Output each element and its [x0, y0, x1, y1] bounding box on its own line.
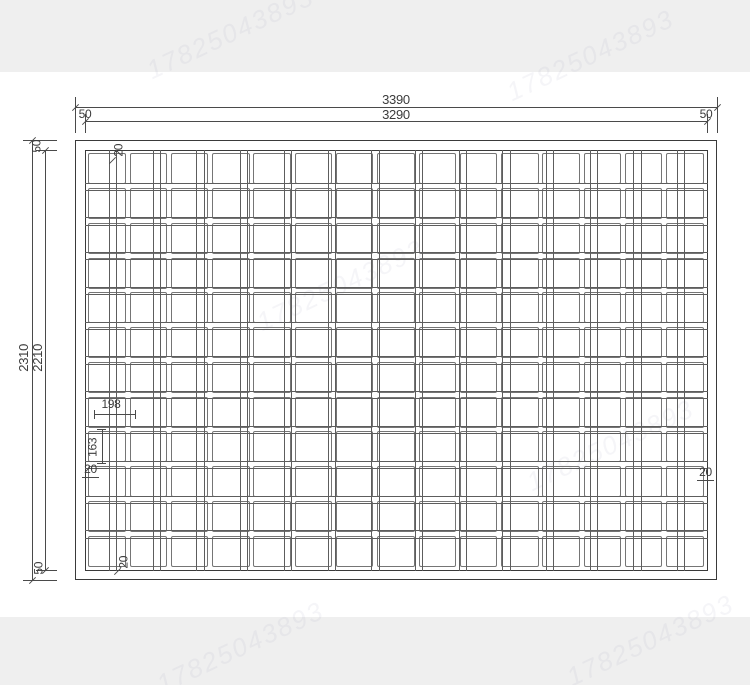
dimension-tick: [94, 410, 95, 419]
horizontal-wire-line: [85, 530, 708, 531]
technical-drawing-canvas: 17825043893 17825043893 17825043893 1782…: [0, 0, 750, 685]
mesh-cell: [336, 258, 374, 289]
mesh-cell: [542, 327, 580, 358]
mesh-cell: [501, 292, 539, 323]
vertical-wire-line: [196, 150, 197, 571]
dim-gap-left-label: 20: [82, 463, 99, 478]
mesh-cell: [130, 258, 168, 289]
vertical-wire-line: [510, 150, 511, 571]
horizontal-wire-line: [85, 468, 708, 469]
mesh-cell: [625, 327, 663, 358]
mesh-cell: [130, 536, 168, 567]
mesh-cell: [625, 292, 663, 323]
mesh-cell: [212, 188, 250, 219]
vertical-wire-line: [466, 150, 467, 571]
dim-cell-width-line: [94, 414, 135, 415]
mesh-cell: [88, 362, 126, 393]
extension-line: [23, 580, 57, 581]
dimension-tick: [135, 410, 136, 419]
mesh-cell: [419, 223, 457, 254]
mesh-cell: [625, 188, 663, 219]
horizontal-wire-line: [85, 538, 708, 539]
mesh-cell: [542, 258, 580, 289]
vertical-wire-line: [291, 150, 292, 571]
vertical-wire-line: [633, 150, 634, 571]
mesh-cell: [336, 188, 374, 219]
mesh-cell: [377, 292, 415, 323]
mesh-cell: [336, 327, 374, 358]
vertical-wire-line: [284, 150, 285, 571]
mesh-cell: [130, 431, 168, 462]
vertical-wire-line: [379, 150, 380, 571]
mesh-cell: [419, 466, 457, 497]
mesh-cell: [212, 466, 250, 497]
dim-inner-width-label: 3290: [366, 108, 426, 122]
mesh-cell: [419, 501, 457, 532]
vertical-wire-line: [641, 150, 642, 571]
vertical-wire-line: [240, 150, 241, 571]
horizontal-wire-line: [85, 398, 708, 399]
mesh-cell: [501, 501, 539, 532]
mesh-cell: [501, 397, 539, 428]
horizontal-wire-line: [85, 329, 708, 330]
mesh-cell: [419, 292, 457, 323]
mesh-cell: [88, 223, 126, 254]
vertical-wire-line: [415, 150, 416, 571]
mesh-cell: [419, 362, 457, 393]
mesh-cell: [253, 536, 291, 567]
mesh-cell: [419, 188, 457, 219]
mesh-cell: [212, 153, 250, 184]
vertical-wire-line: [160, 150, 161, 571]
mesh-cell: [501, 258, 539, 289]
mesh-cell: [542, 536, 580, 567]
dim-total-width-label: 3390: [366, 93, 426, 107]
mesh-cell: [419, 431, 457, 462]
vertical-wire-line: [459, 150, 460, 571]
mesh-cell: [253, 327, 291, 358]
mesh-cell: [625, 258, 663, 289]
mesh-cell: [377, 397, 415, 428]
dim-frame-left-label: 50: [75, 108, 95, 121]
mesh-cell: [501, 466, 539, 497]
dim-cell-height-label: 163: [87, 435, 100, 459]
dim-frame-bottom-label: 50: [33, 558, 46, 578]
horizontal-wire-line: [85, 287, 708, 288]
vertical-wire-line: [597, 150, 598, 571]
mesh-cell: [542, 292, 580, 323]
mesh-cell: [130, 466, 168, 497]
mesh-cell: [336, 292, 374, 323]
mesh-cell: [419, 258, 457, 289]
horizontal-wire-line: [85, 496, 708, 497]
mesh-cell: [377, 466, 415, 497]
vertical-wire-line: [684, 150, 685, 571]
mesh-cell: [542, 188, 580, 219]
mesh-cell: [130, 501, 168, 532]
mesh-cell: [377, 501, 415, 532]
mesh-cell: [130, 362, 168, 393]
dimension-tick: [97, 429, 106, 430]
mesh-cell: [625, 466, 663, 497]
mesh-cell: [212, 362, 250, 393]
horizontal-wire-line: [85, 183, 708, 184]
mesh-cell: [542, 397, 580, 428]
horizontal-wire-line: [85, 190, 708, 191]
vertical-wire-line: [371, 150, 372, 571]
vertical-wire-line: [335, 150, 336, 571]
mesh-cell: [130, 327, 168, 358]
dim-total-height-label: 2310: [17, 338, 31, 378]
mesh-cell: [212, 397, 250, 428]
horizontal-wire-line: [85, 503, 708, 504]
mesh-cell: [253, 153, 291, 184]
vertical-wire-line: [590, 150, 591, 571]
horizontal-wire-line: [85, 364, 708, 365]
mesh-cell: [625, 362, 663, 393]
mesh-cell: [88, 292, 126, 323]
mesh-cell: [336, 466, 374, 497]
mesh-cell: [253, 188, 291, 219]
dim-cell-width-label: 198: [97, 398, 125, 411]
mesh-cell: [130, 292, 168, 323]
mesh-cell: [336, 223, 374, 254]
vertical-wire-line: [116, 150, 117, 571]
dim-gap-right-label: 20: [697, 466, 714, 481]
mesh-cell: [377, 188, 415, 219]
horizontal-wire-line: [85, 217, 708, 218]
mesh-cell: [625, 397, 663, 428]
dim-inner-height-label: 2210: [31, 338, 45, 378]
mesh-cell: [501, 536, 539, 567]
mesh-cell: [377, 223, 415, 254]
mesh-cell: [625, 153, 663, 184]
mesh-cell: [419, 327, 457, 358]
horizontal-wire-line: [85, 225, 708, 226]
extension-line: [717, 97, 718, 133]
mesh-cell: [336, 397, 374, 428]
mesh-cell: [212, 292, 250, 323]
mesh-cell: [501, 362, 539, 393]
mesh-cell: [542, 431, 580, 462]
vertical-wire-line: [553, 150, 554, 571]
mesh-cell: [625, 501, 663, 532]
mesh-cell: [501, 431, 539, 462]
mesh-cell: [130, 223, 168, 254]
mesh-cell: [336, 501, 374, 532]
mesh-cell: [542, 153, 580, 184]
mesh-cell: [542, 362, 580, 393]
dim-cell-height-line: [102, 429, 103, 463]
mesh-cell: [542, 466, 580, 497]
horizontal-wire-line: [85, 259, 708, 260]
mesh-cell: [501, 188, 539, 219]
vertical-wire-line: [109, 150, 110, 571]
horizontal-wire-line: [85, 391, 708, 392]
mesh-cell: [212, 431, 250, 462]
mesh-cell: [336, 362, 374, 393]
vertical-wire-line: [247, 150, 248, 571]
horizontal-wire-line: [85, 461, 708, 462]
dim-frame-top-label: 50: [31, 136, 44, 156]
mesh-cell: [88, 188, 126, 219]
mesh-cell: [130, 188, 168, 219]
mesh-cell: [253, 466, 291, 497]
mesh-cell: [336, 536, 374, 567]
mesh-cell: [377, 153, 415, 184]
mesh-cell: [377, 327, 415, 358]
mesh-cell: [625, 223, 663, 254]
mesh-cell: [253, 431, 291, 462]
vertical-wire-line: [204, 150, 205, 571]
mesh-cell: [212, 258, 250, 289]
mesh-cell: [212, 223, 250, 254]
mesh-cell: [88, 501, 126, 532]
mesh-cell: [625, 536, 663, 567]
top-gray-band: [0, 0, 750, 72]
mesh-cell: [377, 258, 415, 289]
vertical-wire-line: [328, 150, 329, 571]
horizontal-wire-line: [85, 426, 708, 427]
horizontal-wire-line: [85, 322, 708, 323]
mesh-cell: [253, 292, 291, 323]
vertical-wire-line: [153, 150, 154, 571]
mesh-cell: [501, 327, 539, 358]
mesh-cell: [419, 536, 457, 567]
mesh-cell: [253, 501, 291, 532]
mesh-cell: [377, 536, 415, 567]
mesh-cell: [625, 431, 663, 462]
mesh-cell: [336, 153, 374, 184]
dim-frame-right-label: 50: [696, 108, 716, 121]
mesh-cell: [377, 431, 415, 462]
mesh-cell: [212, 501, 250, 532]
mesh-cell: [419, 153, 457, 184]
horizontal-wire-line: [85, 294, 708, 295]
horizontal-wire-line: [85, 252, 708, 253]
mesh-cell: [88, 327, 126, 358]
mesh-cell: [212, 536, 250, 567]
vertical-wire-line: [677, 150, 678, 571]
mesh-cell: [377, 362, 415, 393]
mesh-cell: [212, 327, 250, 358]
mesh-cell: [253, 223, 291, 254]
mesh-cell: [88, 258, 126, 289]
vertical-wire-line: [422, 150, 423, 571]
mesh-cell: [336, 431, 374, 462]
horizontal-wire-line: [85, 433, 708, 434]
vertical-wire-line: [546, 150, 547, 571]
mesh-cell: [253, 397, 291, 428]
mesh-cell: [542, 501, 580, 532]
mesh-cell: [501, 223, 539, 254]
bottom-gray-band: [0, 617, 750, 685]
mesh-cell: [501, 153, 539, 184]
mesh-cell: [130, 153, 168, 184]
vertical-wire-line: [502, 150, 503, 571]
horizontal-wire-line: [85, 356, 708, 357]
mesh-cell: [253, 258, 291, 289]
mesh-cell: [253, 362, 291, 393]
mesh-cell: [419, 397, 457, 428]
mesh-cell: [542, 223, 580, 254]
mesh-grid-layer: [85, 150, 708, 571]
